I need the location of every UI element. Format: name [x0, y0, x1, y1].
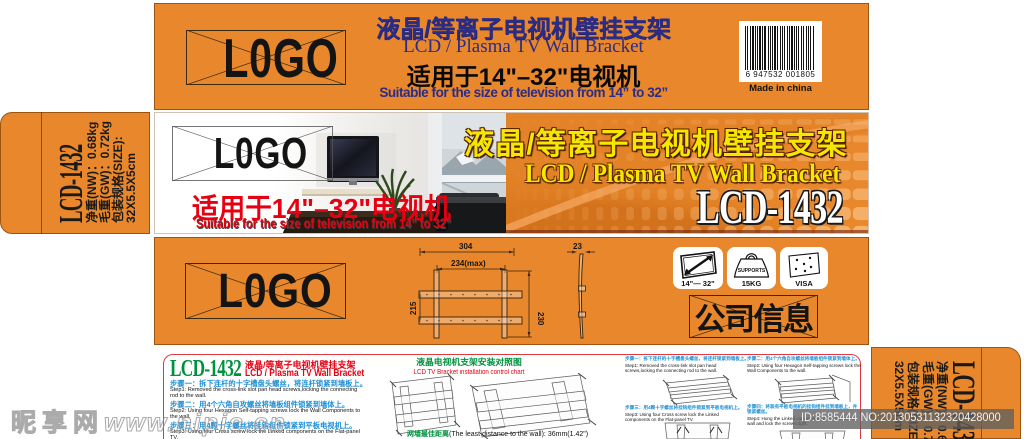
svg-text:15KG: 15KG	[742, 279, 762, 288]
svg-text:215: 215	[409, 301, 418, 315]
svg-text:14"— 32": 14"— 32"	[681, 279, 715, 288]
svg-text:304: 304	[459, 242, 473, 251]
svg-text:230: 230	[536, 312, 545, 326]
svg-text:23: 23	[573, 242, 582, 251]
svg-text:SUPPORTS: SUPPORTS	[738, 268, 766, 274]
svg-text:234(max): 234(max)	[451, 259, 486, 268]
svg-text:VISA: VISA	[795, 279, 813, 288]
